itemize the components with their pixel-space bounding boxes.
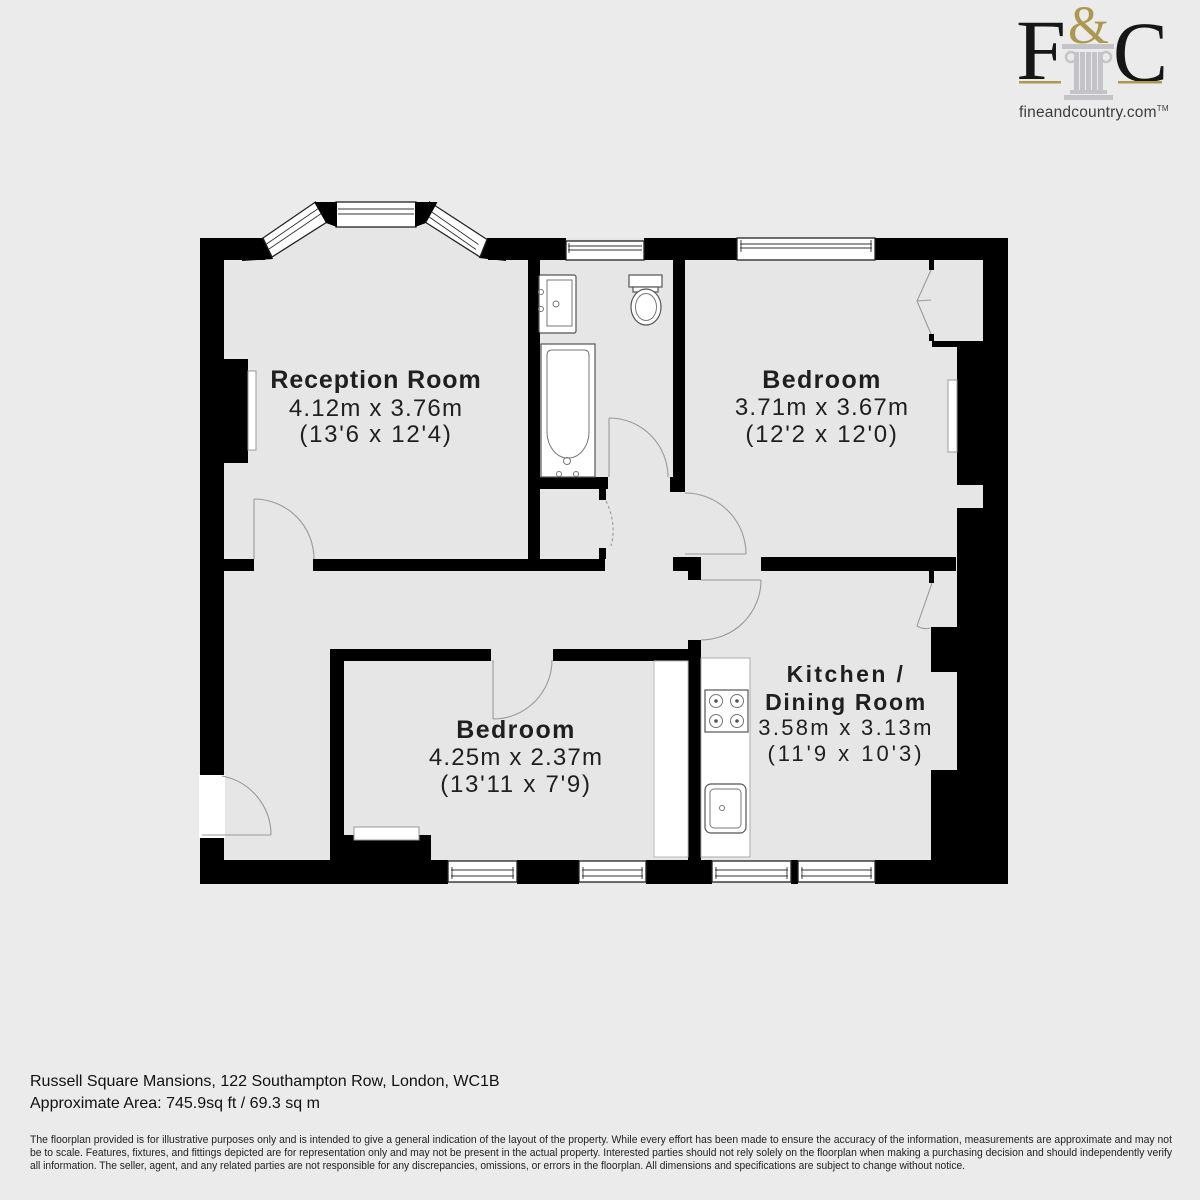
svg-text:Reception Room: Reception Room bbox=[270, 366, 481, 394]
svg-text:fineandcountry.comTM: fineandcountry.comTM bbox=[1019, 104, 1169, 121]
svg-text:(11'9 x 10'3): (11'9 x 10'3) bbox=[767, 741, 924, 766]
svg-text:Kitchen /: Kitchen / bbox=[787, 661, 906, 687]
svg-text:F: F bbox=[1016, 2, 1066, 98]
svg-text:Bedroom: Bedroom bbox=[762, 366, 882, 394]
svg-text:Bedroom: Bedroom bbox=[456, 716, 576, 744]
svg-text:Dining Room: Dining Room bbox=[765, 689, 927, 715]
svg-text:Approximate Area: 745.9sq ft /: Approximate Area: 745.9sq ft / 69.3 sq m bbox=[30, 1095, 320, 1112]
svg-text:C: C bbox=[1113, 4, 1168, 100]
svg-text:The floorplan provided is for: The floorplan provided is for illustrati… bbox=[30, 1134, 1172, 1146]
svg-text:3.58m x 3.13m: 3.58m x 3.13m bbox=[758, 715, 933, 740]
svg-text:(13'6 x 12'4): (13'6 x 12'4) bbox=[299, 421, 452, 448]
svg-text:all information. The seller, a: all information. The seller, agent, and … bbox=[30, 1160, 965, 1172]
svg-text:4.12m x 3.76m: 4.12m x 3.76m bbox=[289, 395, 463, 422]
svg-text:3.71m x 3.67m: 3.71m x 3.67m bbox=[735, 394, 909, 421]
svg-text:4.25m x 2.37m: 4.25m x 2.37m bbox=[429, 744, 603, 771]
svg-text:(12'2 x 12'0): (12'2 x 12'0) bbox=[745, 421, 898, 448]
svg-text:be to scale. Features, fixture: be to scale. Features, fixtures, and fit… bbox=[30, 1147, 1172, 1159]
svg-text:Russell Square Mansions, 122 S: Russell Square Mansions, 122 Southampton… bbox=[30, 1073, 500, 1090]
svg-text:(13'11 x 7'9): (13'11 x 7'9) bbox=[440, 771, 592, 798]
